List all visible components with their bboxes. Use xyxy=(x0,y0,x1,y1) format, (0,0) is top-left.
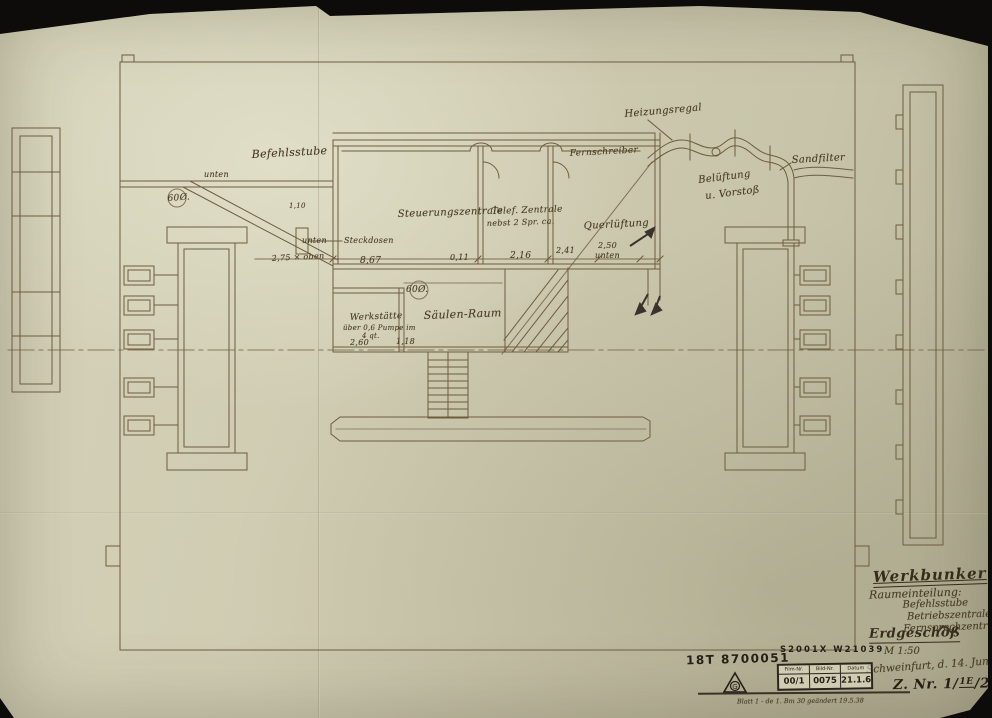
label-241: 2,41 xyxy=(556,246,575,255)
label-heizungsregal: Heizungsregal xyxy=(624,102,702,120)
label-unten-left: unten xyxy=(204,170,229,179)
label-260: 2,60 xyxy=(350,338,369,347)
label-110: 1,10 xyxy=(289,202,306,210)
label-querlueftung: Querlüftung xyxy=(583,218,649,232)
microfilm-table-values: 00/1007521.1.64 xyxy=(779,673,871,689)
label-275-oben: 2,75 × oben xyxy=(272,251,325,263)
microfilm-table-value-cell: 0075 xyxy=(810,674,841,689)
photo-background: { "photo": {"background": "#0d0c0a", "pa… xyxy=(0,0,992,718)
microfilm-table: Film-Nr.Bild-Nr.Datum 00/1007521.1.64 xyxy=(777,662,873,691)
label-60-left: 60Ø. xyxy=(167,192,190,204)
plan-labels-layer: Befehlsstubeunten60Ø.HeizungsregalSandfi… xyxy=(0,0,992,718)
label-sandfilter: Sandfilter xyxy=(791,152,845,166)
blueprint-paper: Befehlsstubeunten60Ø.HeizungsregalSandfi… xyxy=(0,0,992,718)
microfilm-table-value-cell: 00/1 xyxy=(779,674,810,689)
drawing-number-revision: 1E xyxy=(959,677,973,688)
label-250: 2,50 xyxy=(598,241,617,250)
scale-label: M 1:50 xyxy=(884,646,920,657)
label-867: 8,67 xyxy=(360,256,381,266)
label-belueftung: Belüftung xyxy=(698,169,752,186)
label-werkstaette: Werkstätte xyxy=(350,311,403,323)
label-werkstaette-2: über 0,6 Pumpe im xyxy=(343,324,416,332)
label-fernschreiber: Fernschreiber xyxy=(569,145,638,159)
label-steuerungszentrale: Steuerungszentrale xyxy=(398,205,504,220)
label-steckdosen: Steckdosen xyxy=(344,236,394,245)
label-unten-mid: unten xyxy=(302,236,327,245)
label-saeulen-raum: Säulen-Raum xyxy=(424,306,502,322)
label-250-unten: unten xyxy=(595,251,620,260)
revision-note: Blatt 1 - de 1. Bm 30 geändert 19.5.38 xyxy=(737,696,864,705)
label-befehlsstube: Befehlsstube xyxy=(251,144,327,161)
inventory-number-stamp: 18T 8700051 xyxy=(686,651,790,668)
drawing-number-suffix: /2466 xyxy=(974,675,992,692)
label-telef-zentrale-2: nebst 2 Spr. ca. xyxy=(487,217,555,228)
label-216: 2,16 xyxy=(510,251,531,261)
microfilm-code-stamp: S2001X W21039 xyxy=(780,645,884,655)
floor-label: Erdgeschoß xyxy=(869,625,961,644)
label-60-mid: 60Ø. xyxy=(406,285,428,295)
label-telef-zentrale: Telef. Zentrale xyxy=(492,205,563,217)
label-011: 0,11 xyxy=(450,253,469,262)
label-belueftung-2: u. Vorstoß xyxy=(705,184,761,202)
microfilm-table-value-cell: 21.1.64 xyxy=(841,673,871,688)
quality-mark-triangle-icon: G xyxy=(722,671,748,695)
quality-mark-letter: G xyxy=(732,683,737,691)
project-title: Werkbunker xyxy=(873,564,987,588)
label-118: 1,18 xyxy=(396,337,415,346)
